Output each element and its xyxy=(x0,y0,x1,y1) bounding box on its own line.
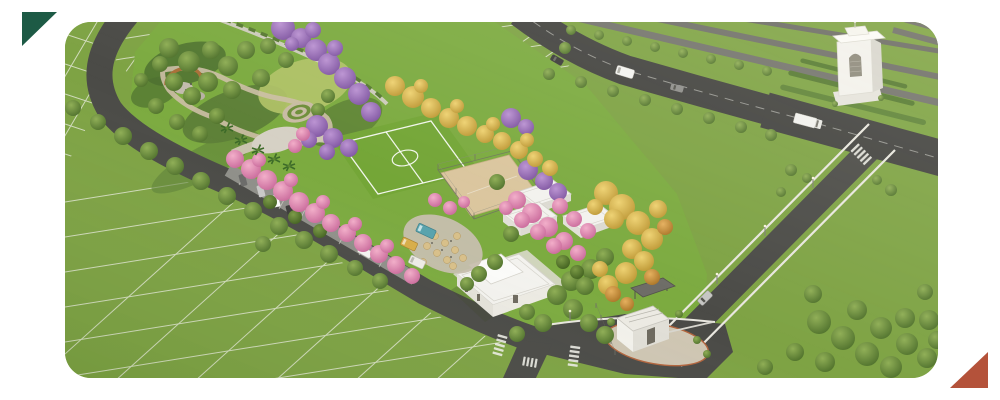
tower-arched-window xyxy=(849,54,862,77)
terracotta-triangle-icon xyxy=(950,352,988,388)
aerial-render xyxy=(65,22,938,378)
corner-accent-bottom-right xyxy=(950,352,988,388)
page-background xyxy=(0,0,1000,400)
corner-accent-top-left xyxy=(22,12,57,46)
development-aerial-image xyxy=(65,22,938,378)
green-triangle-icon xyxy=(22,12,57,46)
